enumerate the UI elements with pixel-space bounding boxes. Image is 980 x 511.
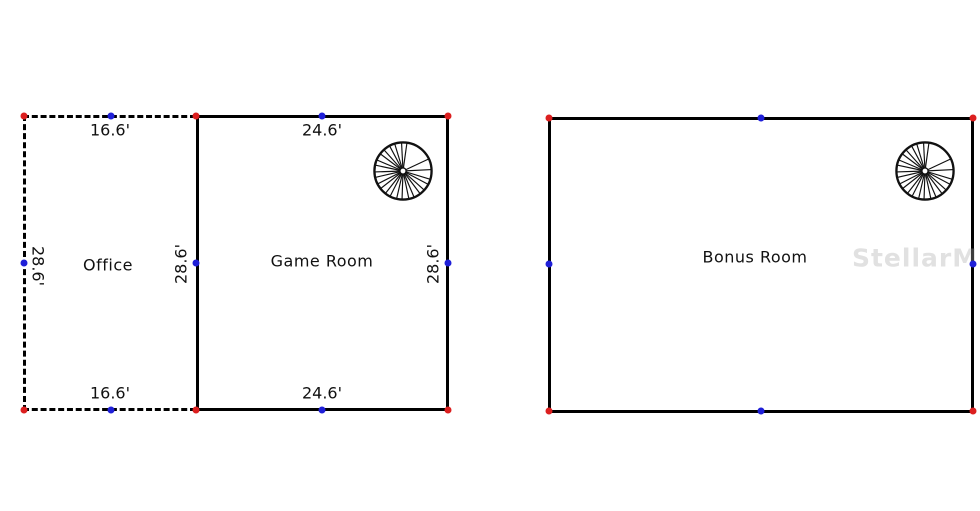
office-dimension-left: 28.6': [29, 246, 48, 286]
floor-plan-image: Office Game Room 16.6' 24.6' 16.6' 24.6'…: [0, 0, 980, 511]
corner-vertex-dot: [193, 407, 200, 414]
edge-midpoint-dot: [758, 408, 765, 415]
game-room-dimension-right: 28.6': [424, 244, 443, 284]
corner-vertex-dot: [445, 407, 452, 414]
edge-midpoint-dot: [546, 261, 553, 268]
game-room-label: Game Room: [271, 252, 374, 271]
edge-midpoint-dot: [21, 260, 28, 267]
edge-midpoint-dot: [108, 113, 115, 120]
office-dimension-right: 28.6': [172, 244, 191, 284]
stellar-mls-watermark: StellarMLS: [852, 244, 980, 273]
corner-vertex-dot: [21, 407, 28, 414]
edge-midpoint-dot: [108, 407, 115, 414]
corner-vertex-dot: [193, 113, 200, 120]
bonus-room-label: Bonus Room: [702, 248, 807, 267]
game-room-dimension-top: 24.6': [302, 121, 342, 140]
office-dimension-bottom: 16.6': [90, 384, 130, 403]
corner-vertex-dot: [970, 115, 977, 122]
office-dimension-top: 16.6': [90, 121, 130, 140]
edge-midpoint-dot: [193, 260, 200, 267]
corner-vertex-dot: [970, 408, 977, 415]
spiral-staircase-icon: [372, 140, 434, 202]
corner-vertex-dot: [546, 408, 553, 415]
office-room-label: Office: [83, 256, 133, 275]
game-room-dimension-bottom: 24.6': [302, 384, 342, 403]
edge-midpoint-dot: [445, 260, 452, 267]
edge-midpoint-dot: [970, 261, 977, 268]
edge-midpoint-dot: [758, 115, 765, 122]
corner-vertex-dot: [21, 113, 28, 120]
corner-vertex-dot: [546, 115, 553, 122]
edge-midpoint-dot: [319, 113, 326, 120]
corner-vertex-dot: [445, 113, 452, 120]
edge-midpoint-dot: [319, 407, 326, 414]
spiral-staircase-icon: [894, 140, 956, 202]
